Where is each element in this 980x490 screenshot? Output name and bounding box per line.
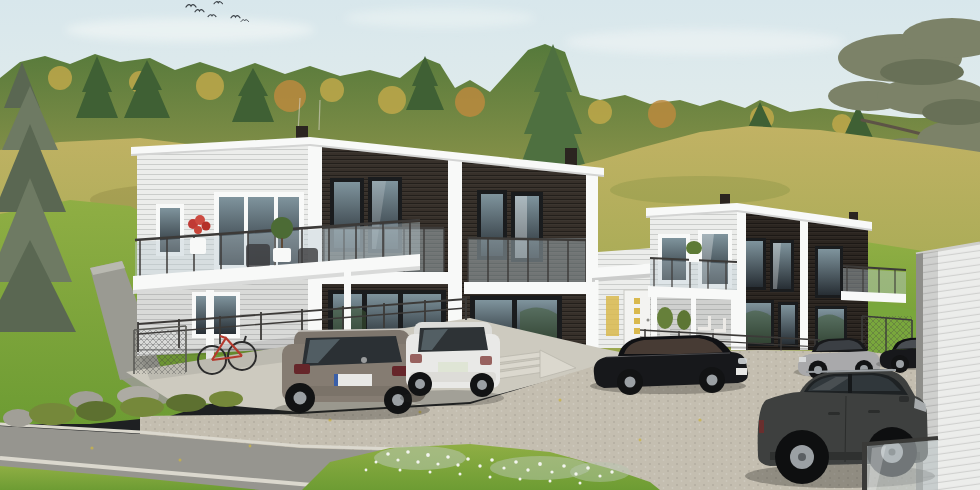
corner-balcony [841,266,906,303]
car-taillight [410,354,422,363]
architectural-rendering [0,0,980,490]
car-taillight [480,356,492,365]
chimney [565,148,577,166]
sidelight-window [606,296,619,336]
license-plate [334,374,372,386]
car-taillight [392,366,408,376]
car-white-suv [400,322,504,406]
window [815,246,843,298]
chain-link-fence [134,326,186,374]
window [770,240,794,292]
car-taillight [294,364,310,374]
car-body [594,352,748,388]
license-plate [438,362,468,372]
car-mirror [899,396,909,402]
scene-canvas [0,0,980,490]
pilaster [737,209,746,350]
pilaster [800,218,808,350]
juliet-balcony [464,238,590,294]
glass-panel [862,438,938,490]
window [192,292,240,338]
